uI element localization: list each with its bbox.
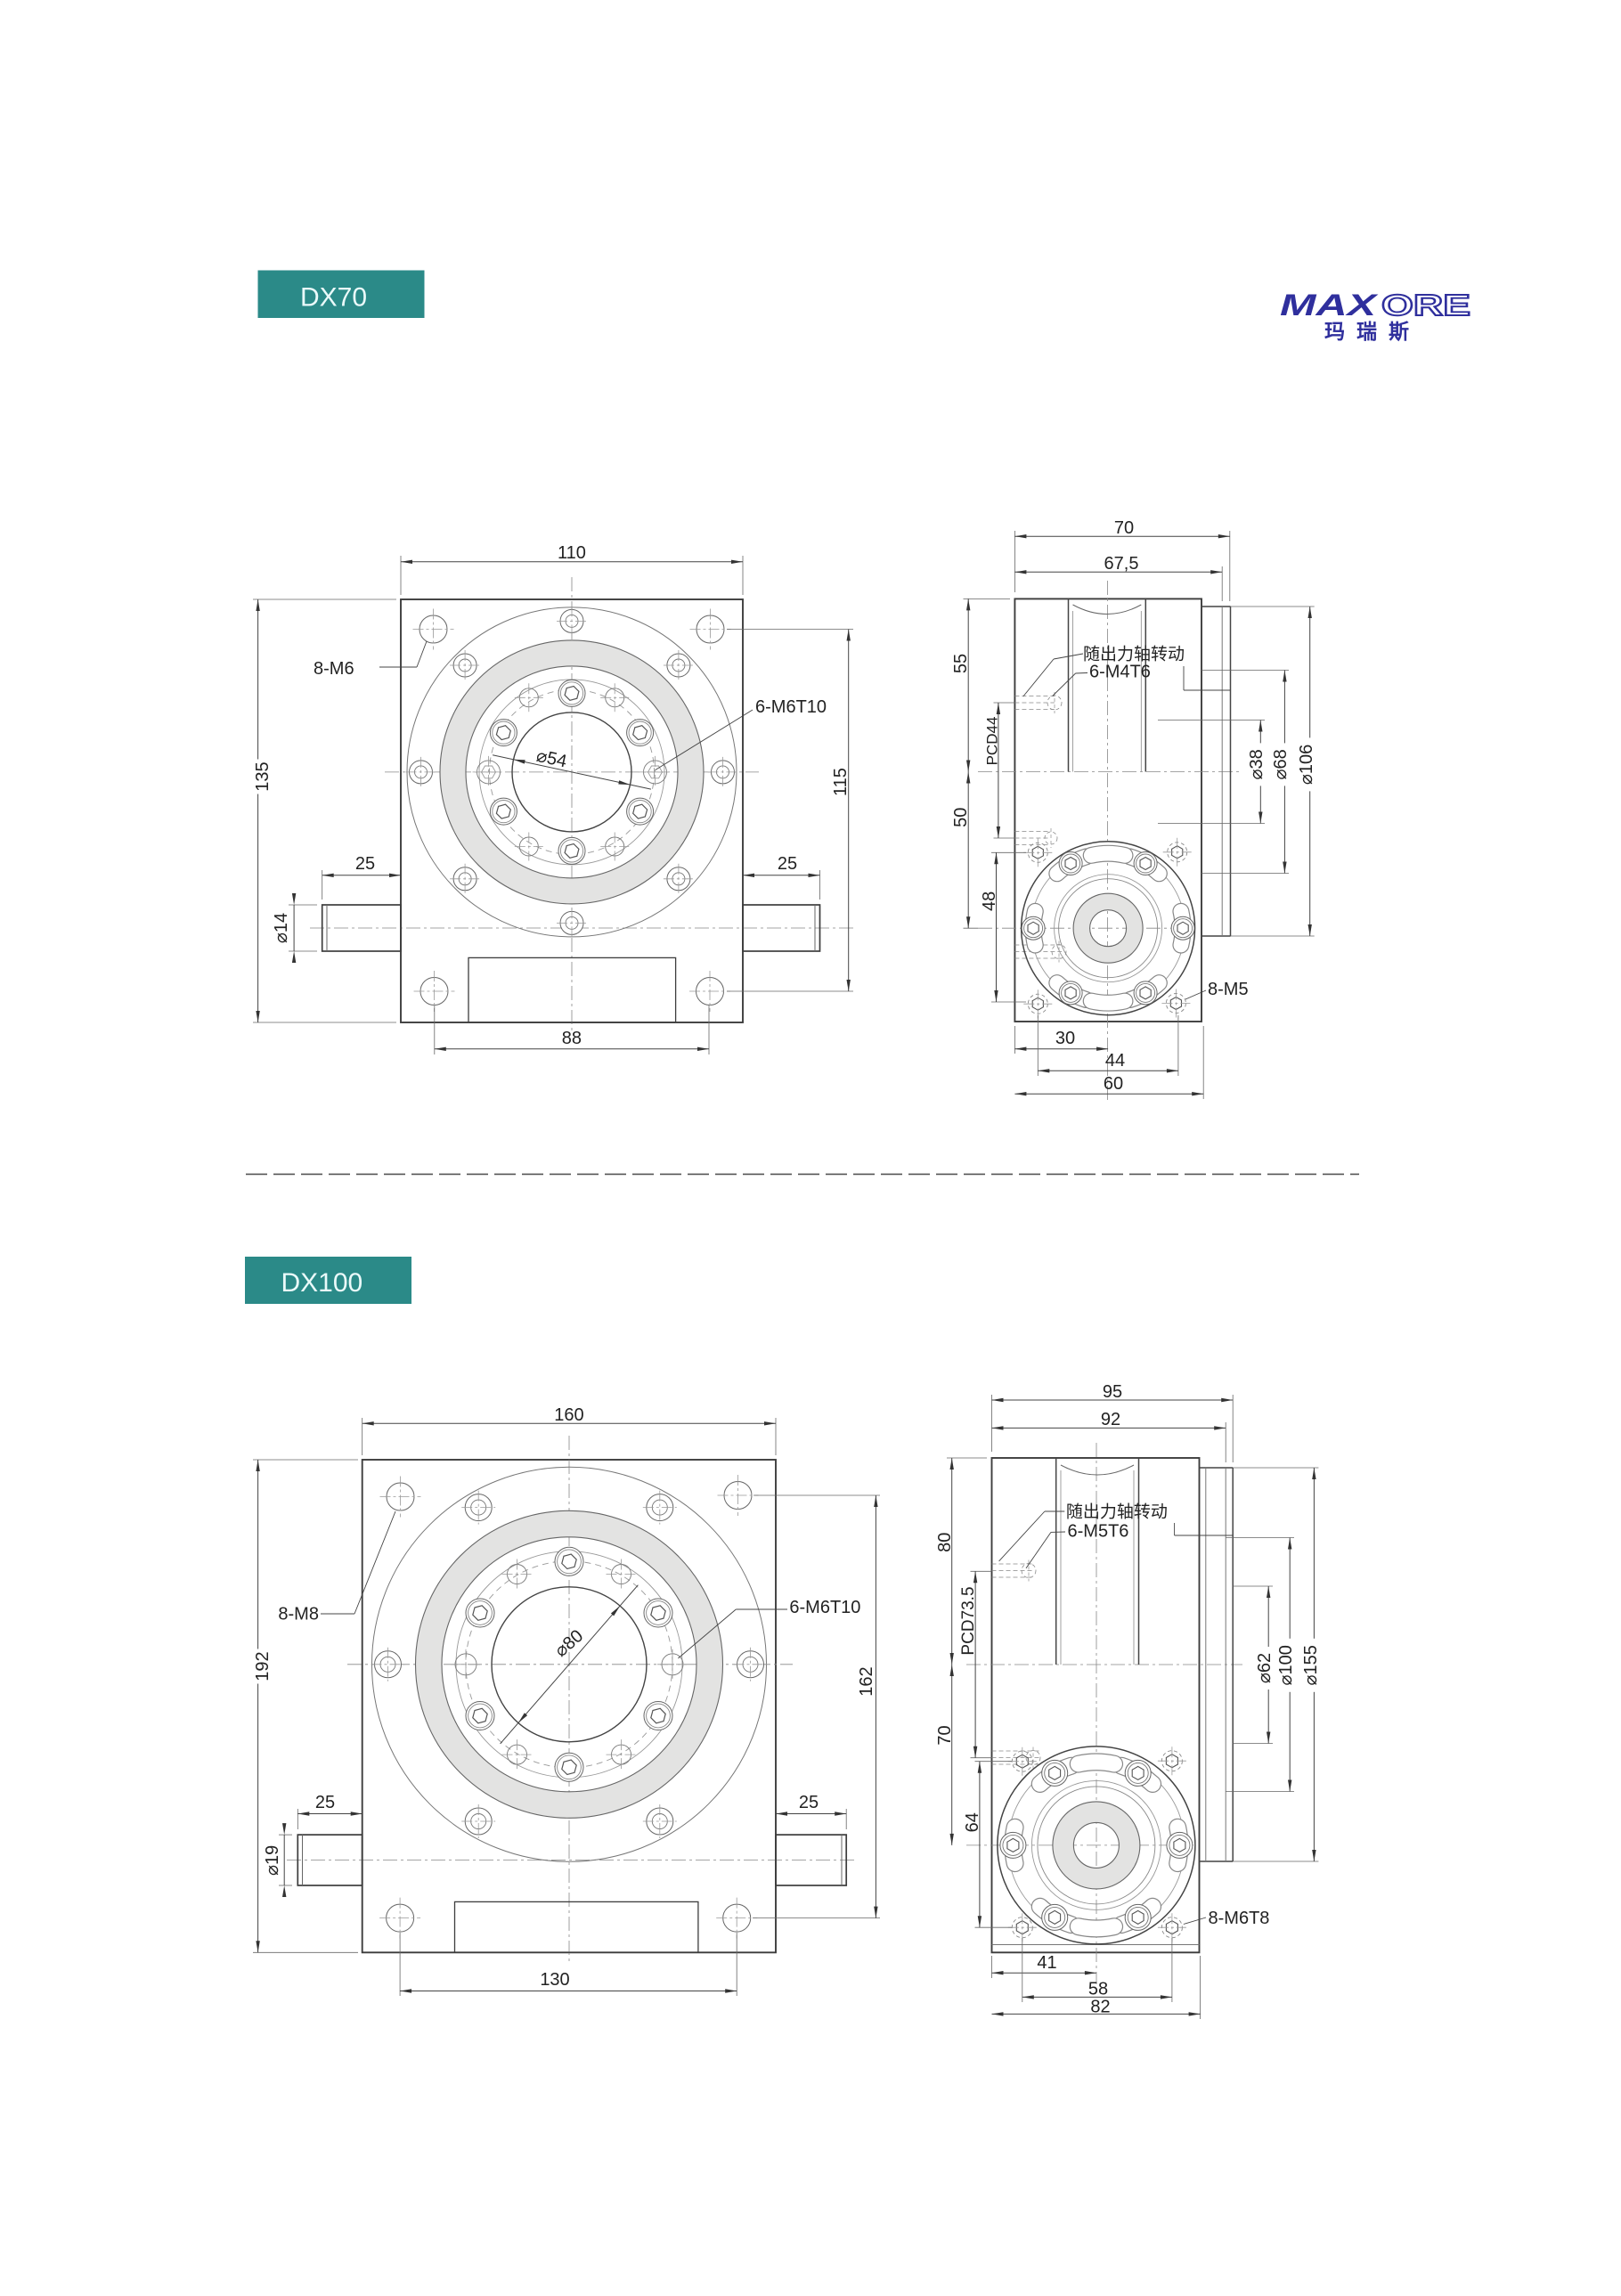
svg-text:6-M6T10: 6-M6T10	[755, 697, 827, 717]
svg-text:⌀100: ⌀100	[1276, 1645, 1296, 1685]
svg-text:115: 115	[831, 768, 851, 796]
svg-text:130: 130	[540, 1970, 569, 1990]
svg-text:6-M6T10: 6-M6T10	[789, 1598, 860, 1617]
svg-text:48: 48	[980, 892, 999, 911]
svg-text:25: 25	[355, 854, 375, 874]
svg-text:25: 25	[778, 854, 797, 874]
svg-text:70: 70	[1114, 518, 1134, 538]
svg-text:80: 80	[935, 1533, 955, 1552]
svg-text:44: 44	[1105, 1051, 1125, 1071]
svg-text:41: 41	[1037, 1953, 1056, 1973]
svg-text:110: 110	[558, 543, 586, 563]
svg-text:PCD44: PCD44	[984, 717, 1001, 766]
svg-text:8-M6: 8-M6	[314, 659, 354, 679]
svg-text:⌀155: ⌀155	[1301, 1645, 1321, 1685]
svg-text:随出力轴转动: 随出力轴转动	[1083, 645, 1185, 664]
svg-text:55: 55	[951, 654, 971, 673]
svg-text:95: 95	[1103, 1382, 1122, 1402]
svg-text:160: 160	[554, 1405, 583, 1425]
svg-text:DX70: DX70	[300, 283, 367, 313]
svg-text:64: 64	[963, 1812, 982, 1832]
svg-text:8-M8: 8-M8	[278, 1605, 319, 1624]
svg-text:⌀68: ⌀68	[1271, 749, 1291, 779]
svg-text:⌀38: ⌀38	[1247, 749, 1267, 779]
svg-text:30: 30	[1055, 1029, 1075, 1048]
svg-text:92: 92	[1101, 1410, 1120, 1429]
svg-text:6-M5T6: 6-M5T6	[1068, 1522, 1129, 1542]
svg-text:192: 192	[253, 1651, 273, 1681]
svg-text:⌀19: ⌀19	[263, 1845, 282, 1876]
svg-text:6-M4T6: 6-M4T6	[1089, 663, 1151, 682]
svg-text:⌀62: ⌀62	[1255, 1653, 1275, 1683]
svg-text:DX100: DX100	[281, 1268, 363, 1298]
svg-text:70: 70	[935, 1725, 955, 1745]
svg-text:50: 50	[951, 808, 971, 827]
svg-text:58: 58	[1088, 1980, 1108, 1999]
svg-text:60: 60	[1104, 1074, 1123, 1094]
svg-text:162: 162	[857, 1666, 876, 1696]
svg-text:135: 135	[253, 761, 273, 791]
svg-text:82: 82	[1090, 1998, 1110, 2017]
svg-text:8-M6T8: 8-M6T8	[1209, 1909, 1270, 1928]
svg-text:⌀106: ⌀106	[1297, 745, 1316, 785]
svg-text:ORE: ORE	[1381, 289, 1470, 322]
svg-text:⌀14: ⌀14	[272, 913, 291, 943]
svg-text:67,5: 67,5	[1104, 554, 1139, 574]
svg-text:25: 25	[315, 1793, 335, 1812]
svg-text:随出力轴转动: 随出力轴转动	[1066, 1502, 1168, 1522]
svg-text:MAX: MAX	[1280, 289, 1379, 322]
svg-text:25: 25	[799, 1793, 819, 1812]
svg-text:PCD73.5: PCD73.5	[959, 1586, 978, 1655]
svg-text:88: 88	[562, 1029, 582, 1048]
svg-text:8-M5: 8-M5	[1208, 980, 1249, 999]
svg-text:玛瑞斯: 玛瑞斯	[1324, 320, 1421, 343]
